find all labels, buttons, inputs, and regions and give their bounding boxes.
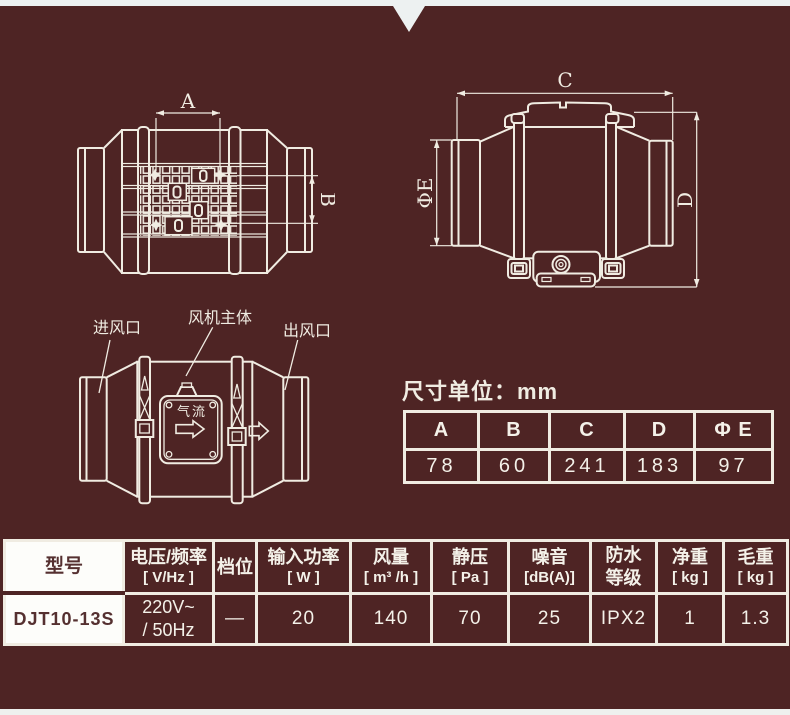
fan-body-outline	[452, 103, 673, 259]
spec-value-model: DJT10-13S	[5, 593, 124, 645]
spec-value-power: 20	[257, 593, 351, 645]
dimension-table-value-row: 78 60 241 183 97	[405, 450, 773, 483]
dimension-unit-note: 尺寸单位：mm	[402, 374, 558, 406]
dim-value-cell: 241	[550, 450, 625, 483]
dim-header-cell: C	[550, 412, 625, 450]
spec-value-gross-weight: 1.3	[724, 593, 788, 645]
spec-value-waterproof: IPX2	[591, 593, 657, 645]
spec-table-value-row: DJT10-13S 220V~/ 50Hz — 20 140 70 25 IPX…	[5, 593, 788, 645]
dim-a-label: A	[180, 89, 196, 113]
spec-header-gear: 档位	[214, 541, 257, 594]
dim-value-cell: 97	[695, 450, 773, 483]
dim-c-label: C	[557, 70, 572, 92]
dim-d-label: D	[673, 192, 697, 208]
spec-header-noise: 噪音[dB(A)]	[509, 541, 591, 594]
spec-table-header-row: 型号 电压/频率[ V/Hz ] 档位 输入功率[ W ] 风量[ m³ /h …	[5, 541, 788, 594]
spec-header-voltage: 电压/频率[ V/Hz ]	[124, 541, 214, 594]
fan-airflow-diagram: 进风口 风机主体 出风口	[55, 300, 335, 515]
inlet-label: 进风口	[93, 319, 141, 337]
spec-header-pressure: 静压[ Pa ]	[432, 541, 509, 594]
fan-top-view-diagram: A B	[55, 85, 335, 305]
airflow-label: 气流	[177, 404, 207, 419]
dim-b-label: B	[316, 192, 335, 207]
dim-value-cell: 60	[479, 450, 550, 483]
dim-header-cell: D	[625, 412, 695, 450]
spec-header-gross-weight: 毛重[ kg ]	[724, 541, 788, 594]
dim-header-cell: B	[479, 412, 550, 450]
fan-side-view-diagram: C D ΦE	[415, 70, 715, 300]
spec-table: 型号 电压/频率[ V/Hz ] 档位 输入功率[ W ] 风量[ m³ /h …	[3, 539, 789, 646]
spec-value-net-weight: 1	[657, 593, 724, 645]
spec-header-net-weight: 净重[ kg ]	[657, 541, 724, 594]
top-notch-triangle	[393, 6, 425, 32]
spec-value-gear: —	[214, 593, 257, 645]
dim-value-cell: 78	[405, 450, 479, 483]
spec-header-waterproof: 防水等级	[591, 541, 657, 594]
spec-value-noise: 25	[509, 593, 591, 645]
dim-phi-e-label: ΦE	[415, 178, 437, 209]
outlet-label: 出风口	[283, 322, 331, 340]
junction-box	[533, 252, 600, 287]
dim-value-cell: 183	[625, 450, 695, 483]
product-spec-page: A B	[0, 0, 790, 715]
leader-lines	[99, 327, 298, 393]
spec-value-voltage: 220V~/ 50Hz	[124, 593, 214, 645]
bottom-edge-strip	[0, 709, 790, 715]
name-plate	[160, 383, 222, 463]
spec-value-airflow: 140	[351, 593, 432, 645]
dimension-table: A B C D Φ E 78 60 241 183 97	[403, 410, 774, 484]
spec-header-power: 输入功率[ W ]	[257, 541, 351, 594]
fan-body-label: 风机主体	[188, 309, 252, 327]
spec-header-airflow: 风量[ m³ /h ]	[351, 541, 432, 594]
dimension-table-header-row: A B C D Φ E	[405, 412, 773, 450]
spec-header-model: 型号	[5, 541, 124, 594]
dim-header-cell: Φ E	[695, 412, 773, 450]
dim-header-cell: A	[405, 412, 479, 450]
spec-value-pressure: 70	[432, 593, 509, 645]
